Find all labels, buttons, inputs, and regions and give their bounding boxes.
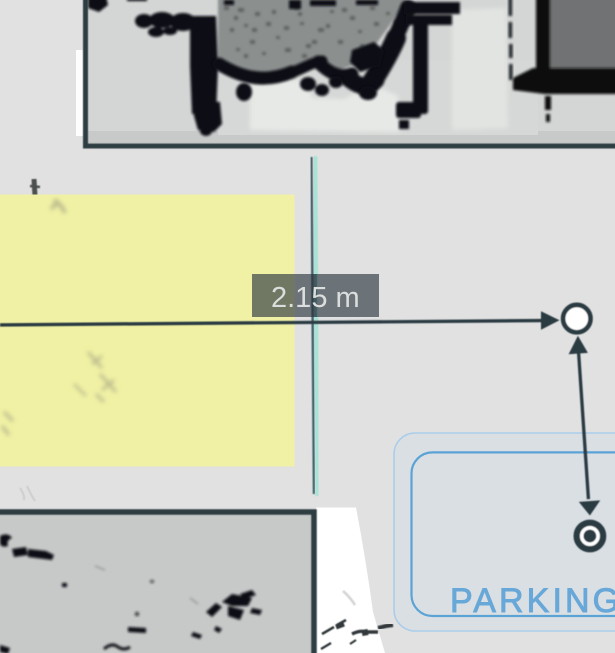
- svg-text:PARKING: PARKING: [450, 582, 615, 620]
- svg-text:2.15 m: 2.15 m: [271, 282, 360, 314]
